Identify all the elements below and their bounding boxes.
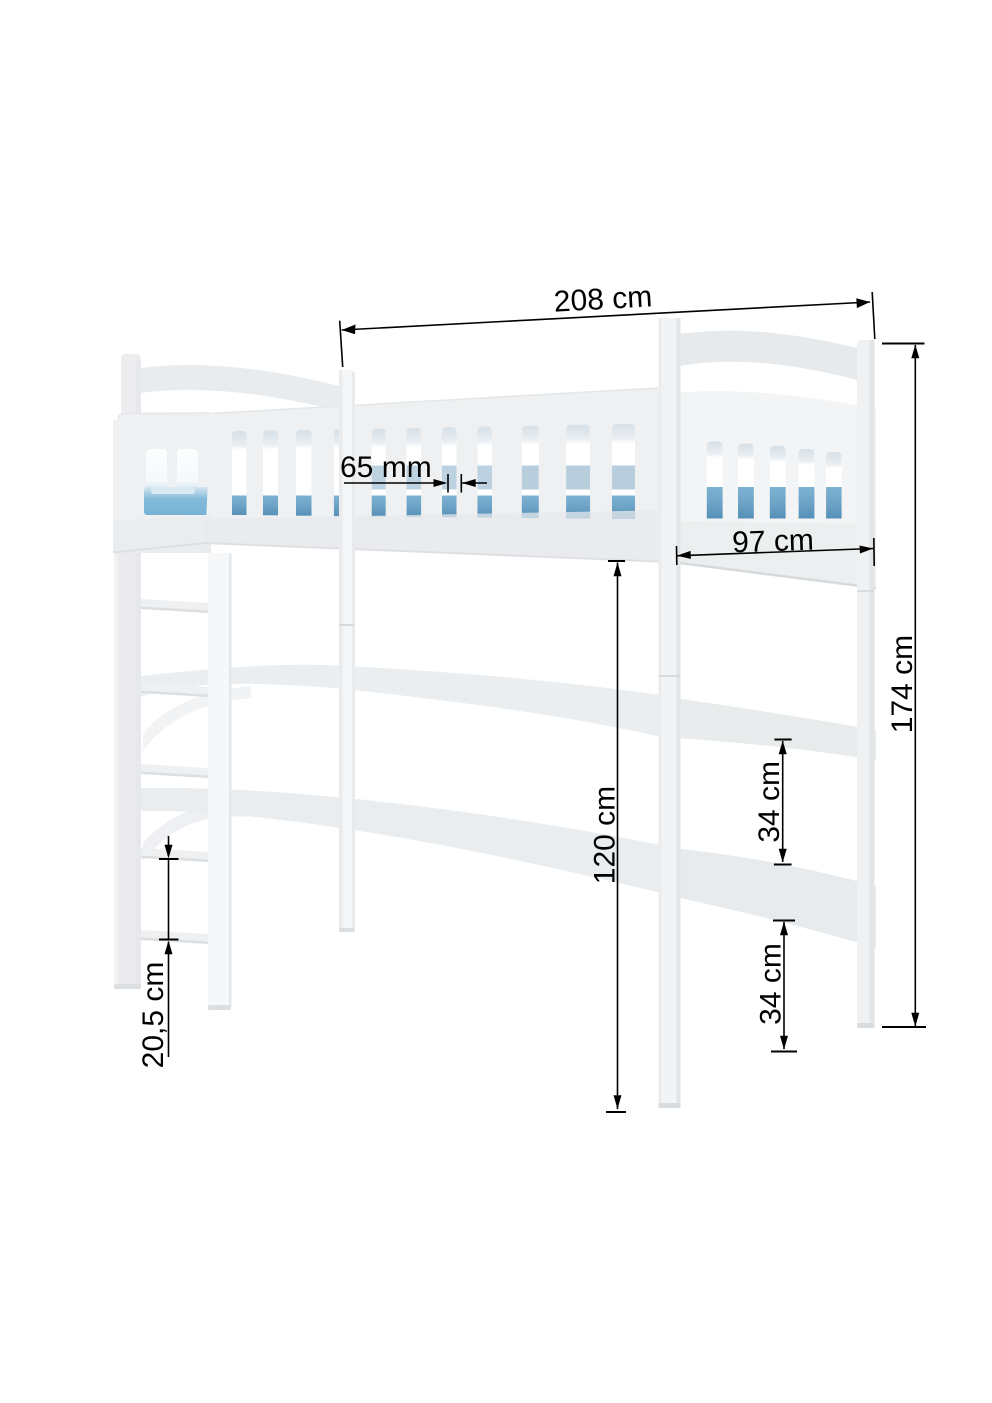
svg-text:34 cm: 34 cm	[753, 761, 786, 843]
svg-text:120 cm: 120 cm	[589, 786, 622, 884]
svg-text:97 cm: 97 cm	[732, 524, 815, 560]
svg-text:65 mm: 65 mm	[340, 451, 432, 484]
svg-text:34 cm: 34 cm	[755, 943, 788, 1025]
svg-text:174 cm: 174 cm	[886, 635, 919, 733]
svg-text:20,5 cm: 20,5 cm	[137, 962, 170, 1069]
svg-text:208 cm: 208 cm	[553, 280, 653, 318]
